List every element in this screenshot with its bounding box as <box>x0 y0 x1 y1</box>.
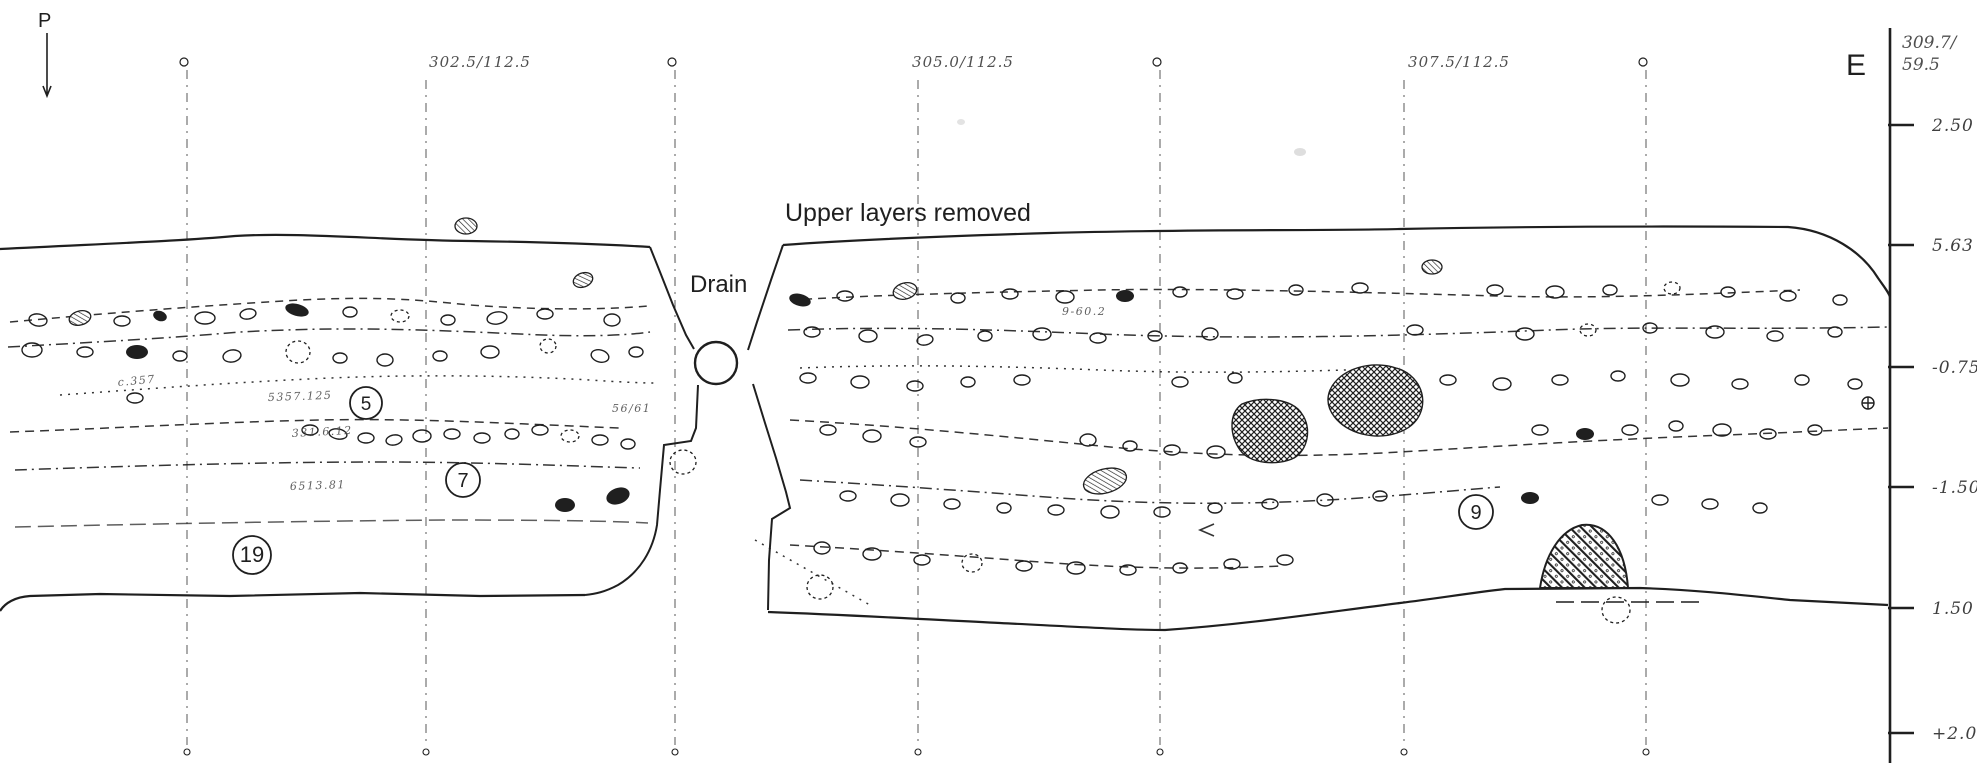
dark-stone <box>788 291 812 308</box>
stone-outline <box>951 293 965 303</box>
stone-outline <box>800 373 816 383</box>
stone-outline <box>907 381 923 391</box>
stone-outline <box>1546 286 1564 298</box>
stone-outline <box>1227 289 1243 299</box>
scale-top-coordinate-line2: 59.5 <box>1902 55 1940 75</box>
stone-outline <box>433 351 447 361</box>
stone-outline <box>333 353 347 363</box>
stone-outline <box>1828 327 1842 337</box>
stone-outline <box>590 348 610 364</box>
stone-outline <box>1352 283 1368 293</box>
stone-outline <box>1101 506 1119 518</box>
stone-outline <box>1780 291 1796 301</box>
grid-top-circle-mark <box>1639 58 1647 66</box>
dark-stone <box>555 498 575 512</box>
dark-stone <box>284 301 310 319</box>
layer-line <box>15 520 648 527</box>
stone-outline <box>1713 424 1731 436</box>
layer-number-text-7: 7 <box>457 470 468 492</box>
stone-outline <box>343 307 357 317</box>
stone-outline <box>1652 495 1668 505</box>
scale-tick-label: 2.50 <box>1931 116 1974 136</box>
layer-number-circles: 57199 <box>233 387 1493 574</box>
stone-outline <box>1603 285 1617 295</box>
grid-bottom-circle-mark <box>1401 749 1407 755</box>
stone-outline <box>22 343 42 357</box>
hatched-stone <box>1422 260 1442 274</box>
layer-lines-right <box>755 289 1888 605</box>
stone-outline <box>1702 499 1718 509</box>
stone-outline <box>413 430 431 442</box>
stone-outline <box>997 503 1011 513</box>
hatched-boulder <box>1540 525 1628 588</box>
find-number-annotation: 331.6.12 <box>291 424 353 440</box>
find-number-annotation: 6513.81 <box>290 478 346 493</box>
stone-outline <box>1848 379 1862 389</box>
stone-outline <box>1090 333 1106 343</box>
survey-grid-lines: 302.5/112.5305.0/112.5307.5/112.5 <box>180 53 1649 755</box>
hatched-stone <box>891 280 918 302</box>
grid-bottom-circle-mark <box>915 749 921 755</box>
find-number-annotation: 56/61 <box>612 402 651 415</box>
scan-smudge <box>957 119 965 125</box>
scan-smudge <box>1294 148 1306 156</box>
stone-outline <box>916 334 933 347</box>
stone-outline <box>1056 291 1074 303</box>
stone-outline <box>944 499 960 509</box>
hatched-stone <box>1081 464 1130 499</box>
stone-outline <box>1080 434 1096 446</box>
stone-outline <box>1407 325 1423 335</box>
drain-funnel-right <box>748 245 783 350</box>
section-outline-right-bottom <box>768 588 1888 630</box>
stone-outline <box>1732 379 1748 389</box>
find-number-annotation: c.357 <box>117 373 156 389</box>
scale-tick-label: -0.75 <box>1932 358 1977 378</box>
layer-line <box>8 329 650 347</box>
rubble-cluster-b <box>1328 365 1423 436</box>
stone-outline <box>358 433 374 443</box>
stone-outline <box>1440 375 1456 385</box>
dark-stone <box>1116 290 1134 302</box>
stone-outline <box>820 425 836 435</box>
layer-line <box>15 462 640 470</box>
upper-layers-removed-label: Upper layers removed <box>785 199 1031 227</box>
stone-outline <box>859 330 877 342</box>
stone-outline <box>1228 373 1242 383</box>
stone-outline <box>1173 287 1187 297</box>
stone-outline <box>286 341 310 363</box>
stone-outline <box>377 354 393 366</box>
layer-line <box>800 480 1500 503</box>
stone-outline <box>1516 328 1534 340</box>
stone-outline <box>840 491 856 501</box>
drain-label: Drain <box>690 271 747 298</box>
stone-outline <box>537 309 553 319</box>
stone-outline <box>621 439 635 449</box>
stone-outline <box>540 339 556 353</box>
grid-bottom-circle-mark <box>1157 749 1163 755</box>
section-outline-right-inner <box>753 384 790 610</box>
stone-outline <box>807 575 833 599</box>
profile-point-plumb-line <box>43 33 51 96</box>
section-outline-right-top <box>783 227 1890 297</box>
stone-outline <box>961 377 975 387</box>
drain-pipe-circle <box>695 342 737 384</box>
layer-line <box>10 298 648 322</box>
grid-bottom-circle-mark <box>184 749 190 755</box>
stone-outline <box>195 312 215 324</box>
stone-outline <box>1669 421 1683 431</box>
stone-outline <box>481 346 499 358</box>
grid-top-circle-mark <box>668 58 676 66</box>
stone-outline <box>1580 324 1596 336</box>
stone-outline <box>1048 505 1064 515</box>
scale-tick-label: -1.50 <box>1932 478 1977 498</box>
stone-outline <box>1207 446 1225 458</box>
stone-outline <box>1671 374 1689 386</box>
stone-outline <box>914 555 930 565</box>
stone-outline <box>385 434 402 447</box>
layer-number-text-5: 5 <box>361 394 372 415</box>
stone-outline <box>1602 597 1630 623</box>
scale-top-coordinate-line1: 309.7/ <box>1902 33 1959 53</box>
stone-outline <box>1532 425 1548 435</box>
grid-bottom-circle-mark <box>423 749 429 755</box>
hatched-stone <box>68 308 93 327</box>
stone-outline <box>114 316 130 326</box>
stone-outline <box>222 349 242 364</box>
stone-outline <box>532 425 548 435</box>
stone-outline <box>629 347 643 357</box>
dark-stone <box>604 484 632 507</box>
scale-tick-label: 5.63 <box>1932 236 1974 256</box>
stone-outline <box>1154 507 1170 517</box>
layer-line-arrowhead <box>1200 524 1214 536</box>
section-letter-label: E <box>1846 49 1866 82</box>
stone-outline <box>978 331 992 341</box>
stone-outline <box>592 435 608 445</box>
stone-outline <box>837 291 853 301</box>
stone-outline <box>1277 555 1293 565</box>
grid-bottom-circle-mark <box>1643 749 1649 755</box>
stone-outline <box>670 450 696 474</box>
stone-outline <box>604 314 620 326</box>
stone-outline <box>486 310 508 325</box>
stone-outline <box>1016 561 1032 571</box>
dark-stone <box>152 309 169 323</box>
stone-outline <box>1202 328 1218 340</box>
profile-point-label: P <box>38 10 51 32</box>
section-outline-left-bottom <box>0 593 585 611</box>
elevation-scale: 309.7/59.52.505.63-0.75-1.501.50+2.00 <box>1888 28 1977 763</box>
stone-outline <box>1795 375 1809 385</box>
stone-outline <box>1002 289 1018 299</box>
find-annotations: 5357.125331.6.126513.81c.35756/619-60.2 <box>117 305 1106 493</box>
stone-outline <box>1289 285 1303 295</box>
section-outline-left-top <box>0 235 650 249</box>
stone-outline <box>1033 328 1051 340</box>
stone-outline <box>173 351 187 361</box>
stone-outline <box>1164 445 1180 455</box>
stone-outline <box>1706 326 1724 338</box>
stone-outline <box>1664 282 1680 294</box>
stone-outline <box>804 327 820 337</box>
benchmark-symbol <box>1862 397 1874 409</box>
stone-outline <box>505 429 519 439</box>
hatched-stone <box>455 218 477 234</box>
grid-coordinate-label: 307.5/112.5 <box>1408 53 1510 71</box>
stone-outline <box>474 433 490 443</box>
stone-outline <box>1014 375 1030 385</box>
stone-outline <box>1753 503 1767 513</box>
rubble-cluster-a <box>1232 399 1308 462</box>
layer-line <box>755 540 870 605</box>
stone-outline <box>814 542 830 554</box>
stone-outline <box>391 310 409 322</box>
stone-outline <box>891 494 909 506</box>
stone-outline <box>1208 503 1222 513</box>
scale-tick-label: 1.50 <box>1932 599 1974 619</box>
stone-outline <box>1262 499 1278 509</box>
layer-number-text-9: 9 <box>1470 502 1481 524</box>
stone-outline <box>561 430 579 442</box>
layer-line <box>800 366 1400 372</box>
stone-outline <box>1172 377 1188 387</box>
grid-bottom-circle-mark <box>672 749 678 755</box>
hatched-stone <box>571 270 595 290</box>
stone-outline <box>77 347 93 357</box>
stone-outline <box>851 376 869 388</box>
drain-funnel-left <box>650 247 694 349</box>
stone-outline <box>1123 441 1137 451</box>
layer-line <box>790 420 1888 455</box>
stone-outline <box>1552 375 1568 385</box>
stone-outline <box>444 429 460 439</box>
archaeological-section-svg: 302.5/112.5305.0/112.5307.5/112.5 309.7/… <box>0 0 1977 763</box>
section-outline-left-inner <box>585 385 698 595</box>
layer-lines-left <box>8 298 655 527</box>
stone-outline <box>239 308 256 321</box>
grid-top-circle-mark <box>1153 58 1161 66</box>
stone-outline <box>127 393 143 403</box>
dark-stone <box>1521 492 1539 504</box>
find-number-annotation: 5357.125 <box>268 389 333 404</box>
stone-outline <box>863 430 881 442</box>
stone-outline <box>1611 371 1625 381</box>
dark-stone <box>1576 428 1594 440</box>
stone-outline <box>1833 295 1847 305</box>
grid-coordinate-label: 305.0/112.5 <box>912 53 1014 71</box>
dark-stone <box>126 345 148 359</box>
grid-coordinate-label: 302.5/112.5 <box>429 53 531 71</box>
stone-outline <box>441 315 455 325</box>
stone-outline <box>1767 331 1783 341</box>
scale-tick-label: +2.00 <box>1932 724 1977 744</box>
grid-top-circle-mark <box>180 58 188 66</box>
find-number-annotation: 9-60.2 <box>1062 305 1106 318</box>
stone-outline <box>1808 425 1822 435</box>
section-drawing-page: 302.5/112.5305.0/112.5307.5/112.5 309.7/… <box>0 0 1977 763</box>
stone-outline <box>1487 285 1503 295</box>
stone-outline <box>1622 425 1638 435</box>
layer-number-text-19: 19 <box>240 542 264 567</box>
stone-outline <box>1493 378 1511 390</box>
